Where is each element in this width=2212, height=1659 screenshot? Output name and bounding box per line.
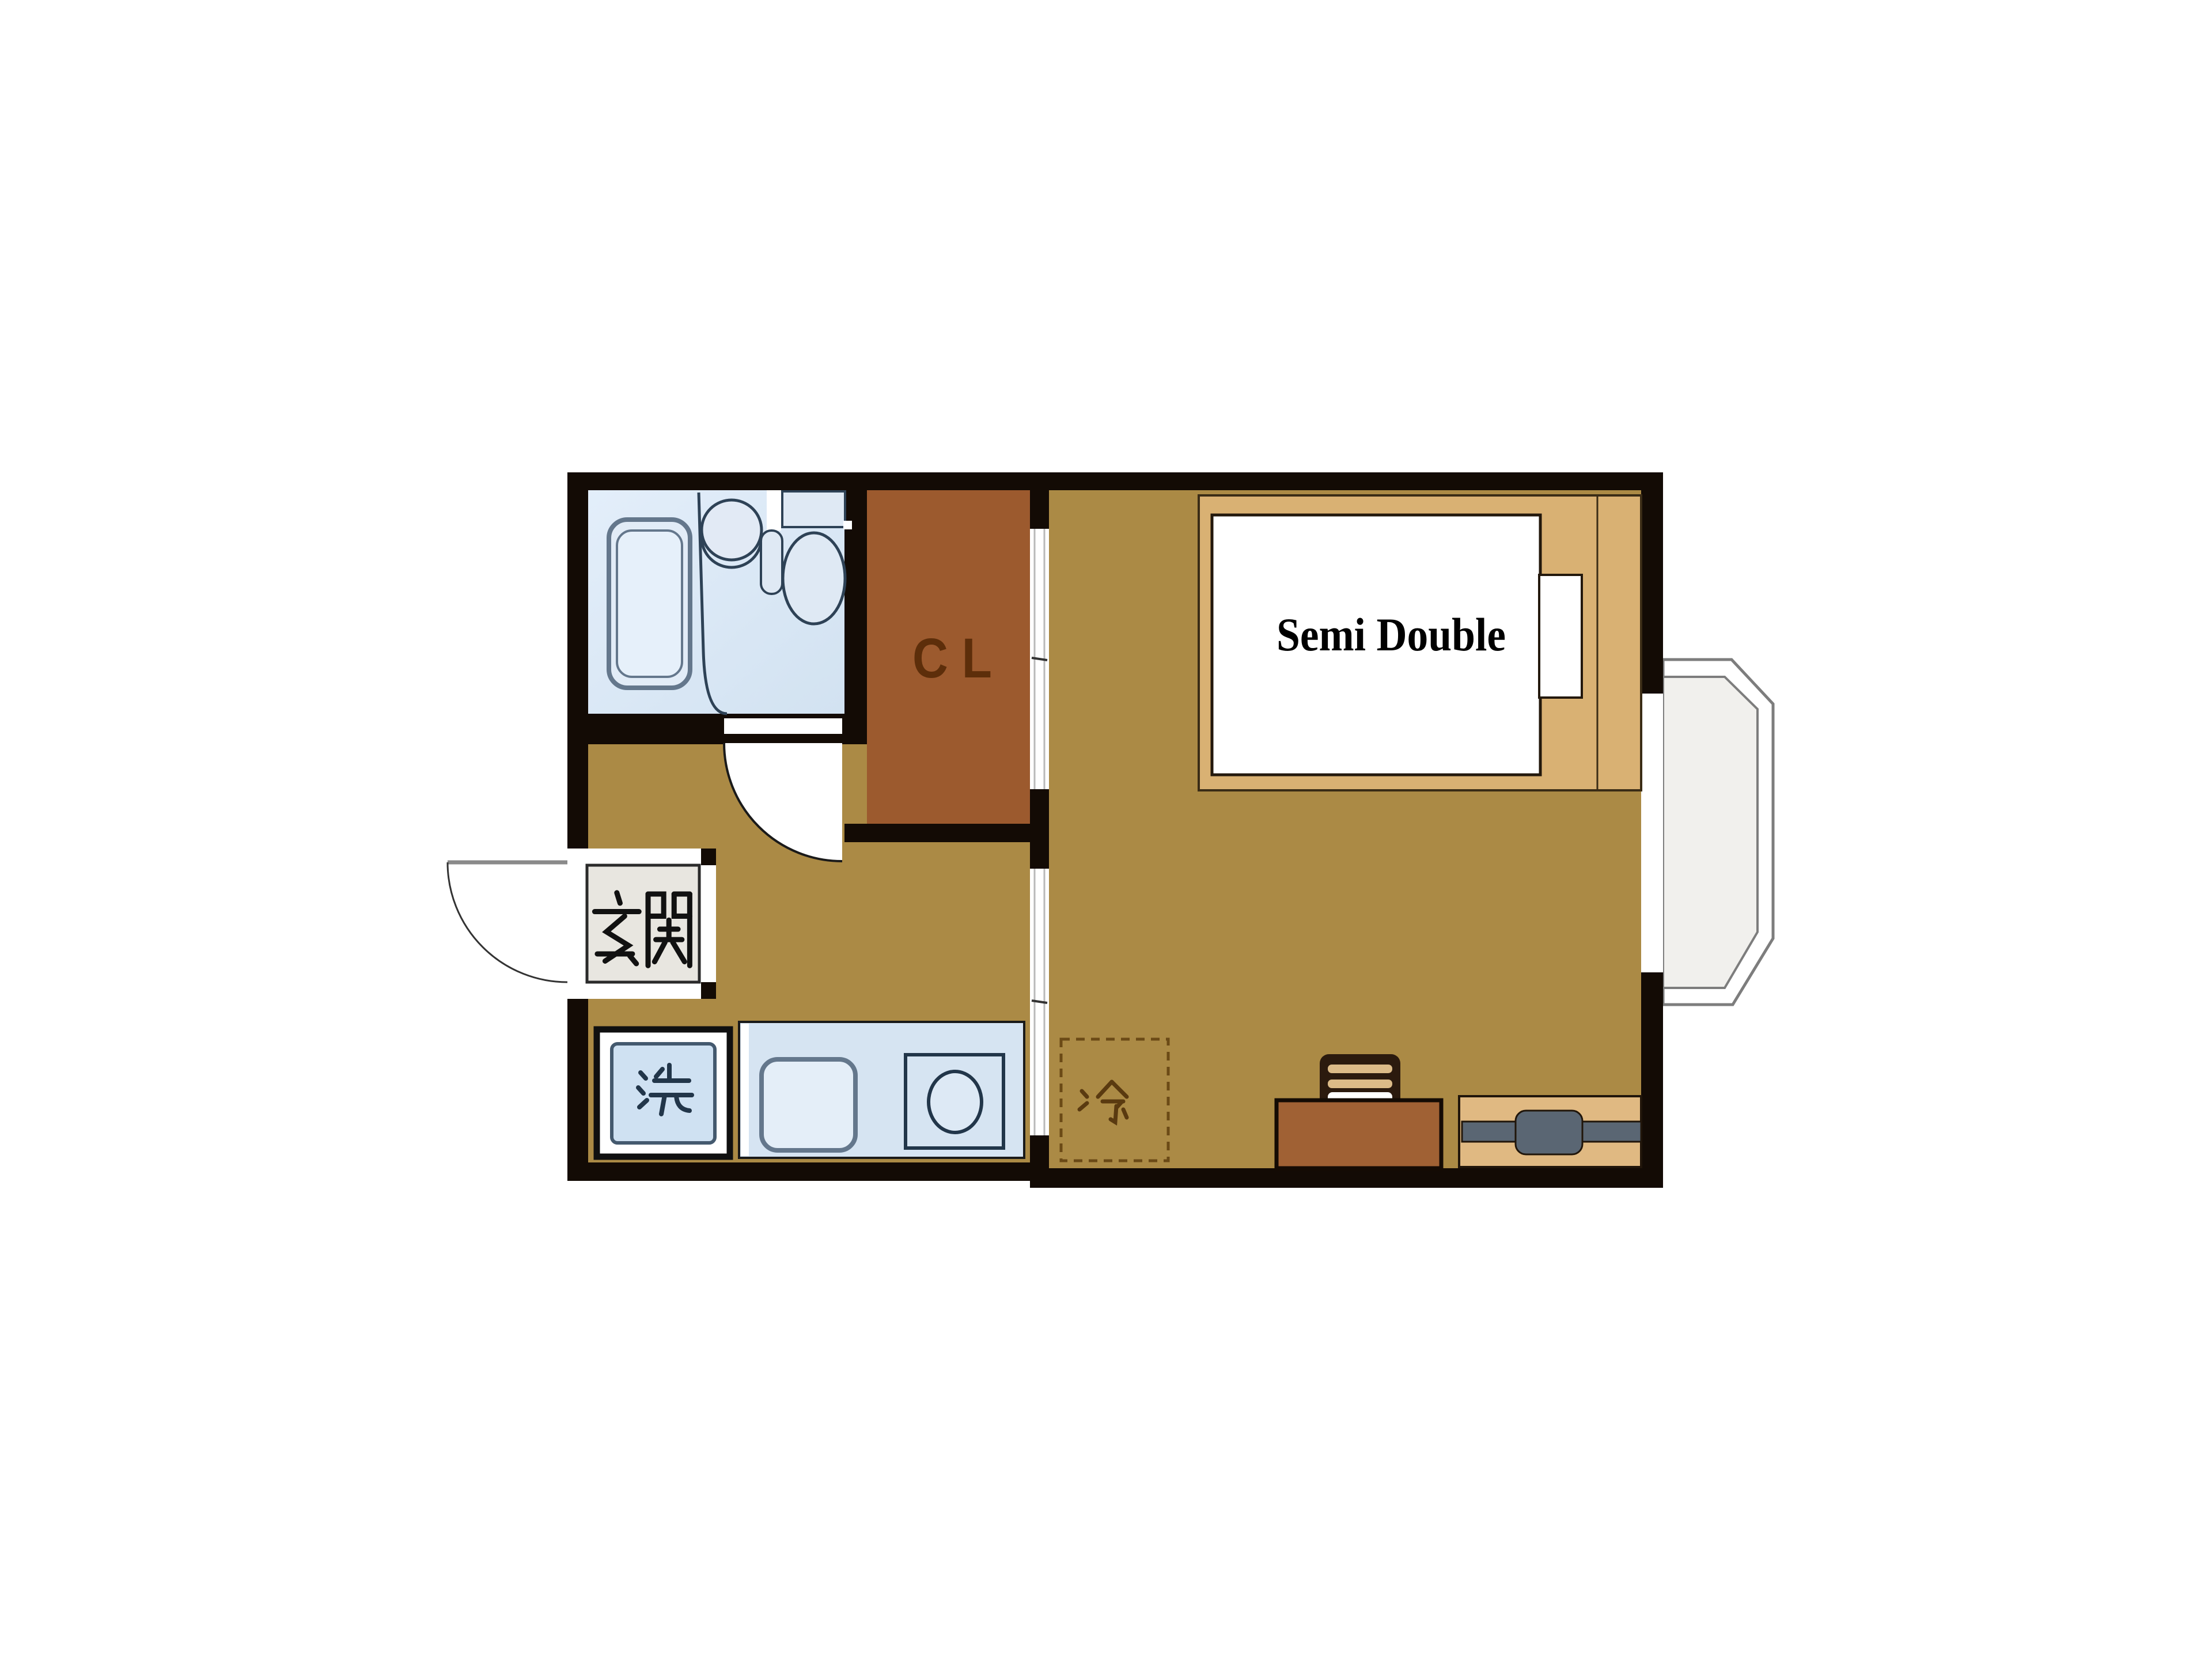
svg-text:Semi Double: Semi Double [1277, 608, 1506, 661]
svg-text:C L: C L [912, 627, 992, 690]
